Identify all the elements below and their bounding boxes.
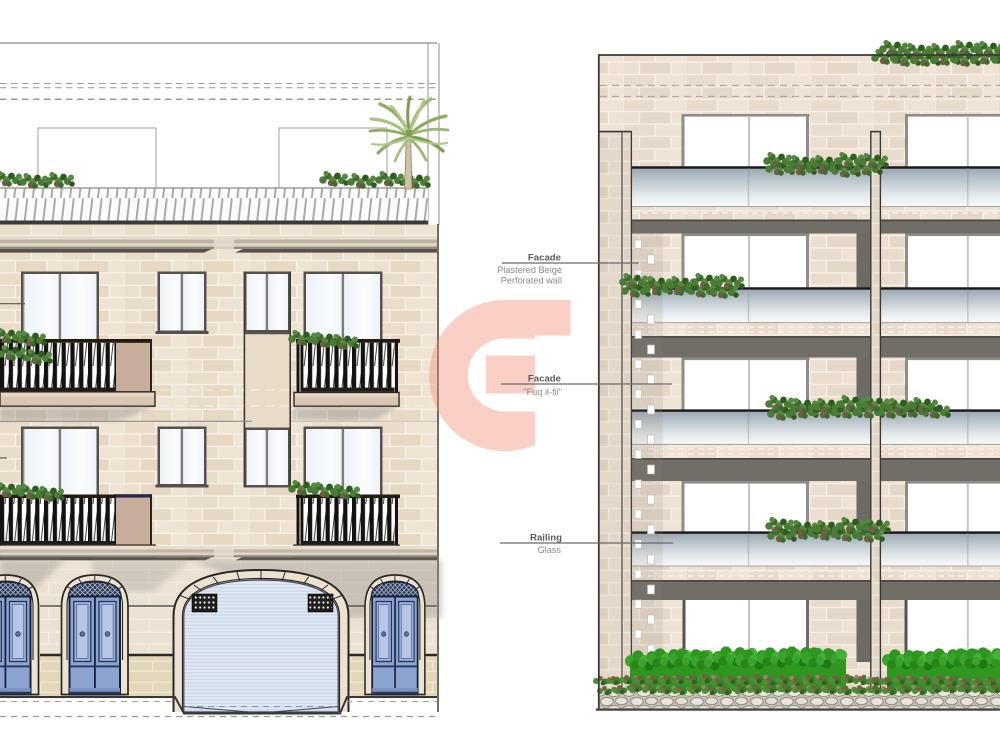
svg-text:Perforated wall: Perforated wall	[501, 276, 562, 286]
svg-text:Facade: Facade	[528, 253, 561, 264]
svg-text:Railing: Railing	[530, 533, 562, 544]
svg-text:Glass: Glass	[538, 545, 562, 555]
svg-text:Facade: Facade	[528, 374, 561, 385]
svg-text:"Fuq il-fil": "Fuq il-fil"	[523, 387, 562, 397]
svg-text:Plastered Beige: Plastered Beige	[497, 265, 562, 275]
